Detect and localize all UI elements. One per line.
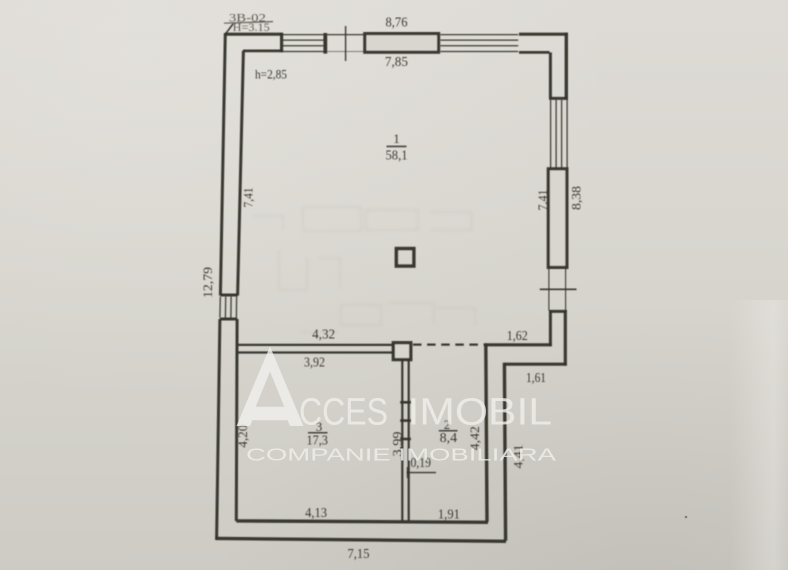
svg-text:8,38: 8,38 (569, 186, 584, 210)
svg-text:1: 1 (393, 131, 400, 146)
svg-text:7,15: 7,15 (348, 547, 370, 562)
svg-text:4,13: 4,13 (305, 506, 327, 521)
svg-text:58,1: 58,1 (386, 148, 408, 163)
svg-text:4,32: 4,32 (312, 328, 335, 343)
svg-text:8,76: 8,76 (386, 16, 408, 31)
svg-text:1,61: 1,61 (526, 371, 546, 386)
svg-text:7,41: 7,41 (240, 188, 255, 208)
svg-text:3,92: 3,92 (304, 356, 325, 371)
svg-text:12,79: 12,79 (200, 267, 215, 298)
svg-text:h=2,85: h=2,85 (255, 68, 287, 82)
svg-text:1,91: 1,91 (438, 508, 460, 523)
svg-text:H=3.15: H=3.15 (233, 22, 270, 34)
svg-text:IMOBIL: IMOBIL (408, 392, 553, 434)
svg-text:7,41: 7,41 (535, 190, 550, 211)
svg-text:1,62: 1,62 (507, 329, 528, 344)
svg-text:7,85: 7,85 (385, 55, 408, 70)
svg-text:COMPANIE IMOBILIARA: COMPANIE IMOBILIARA (246, 445, 557, 465)
svg-text:CCES: CCES (299, 392, 388, 434)
